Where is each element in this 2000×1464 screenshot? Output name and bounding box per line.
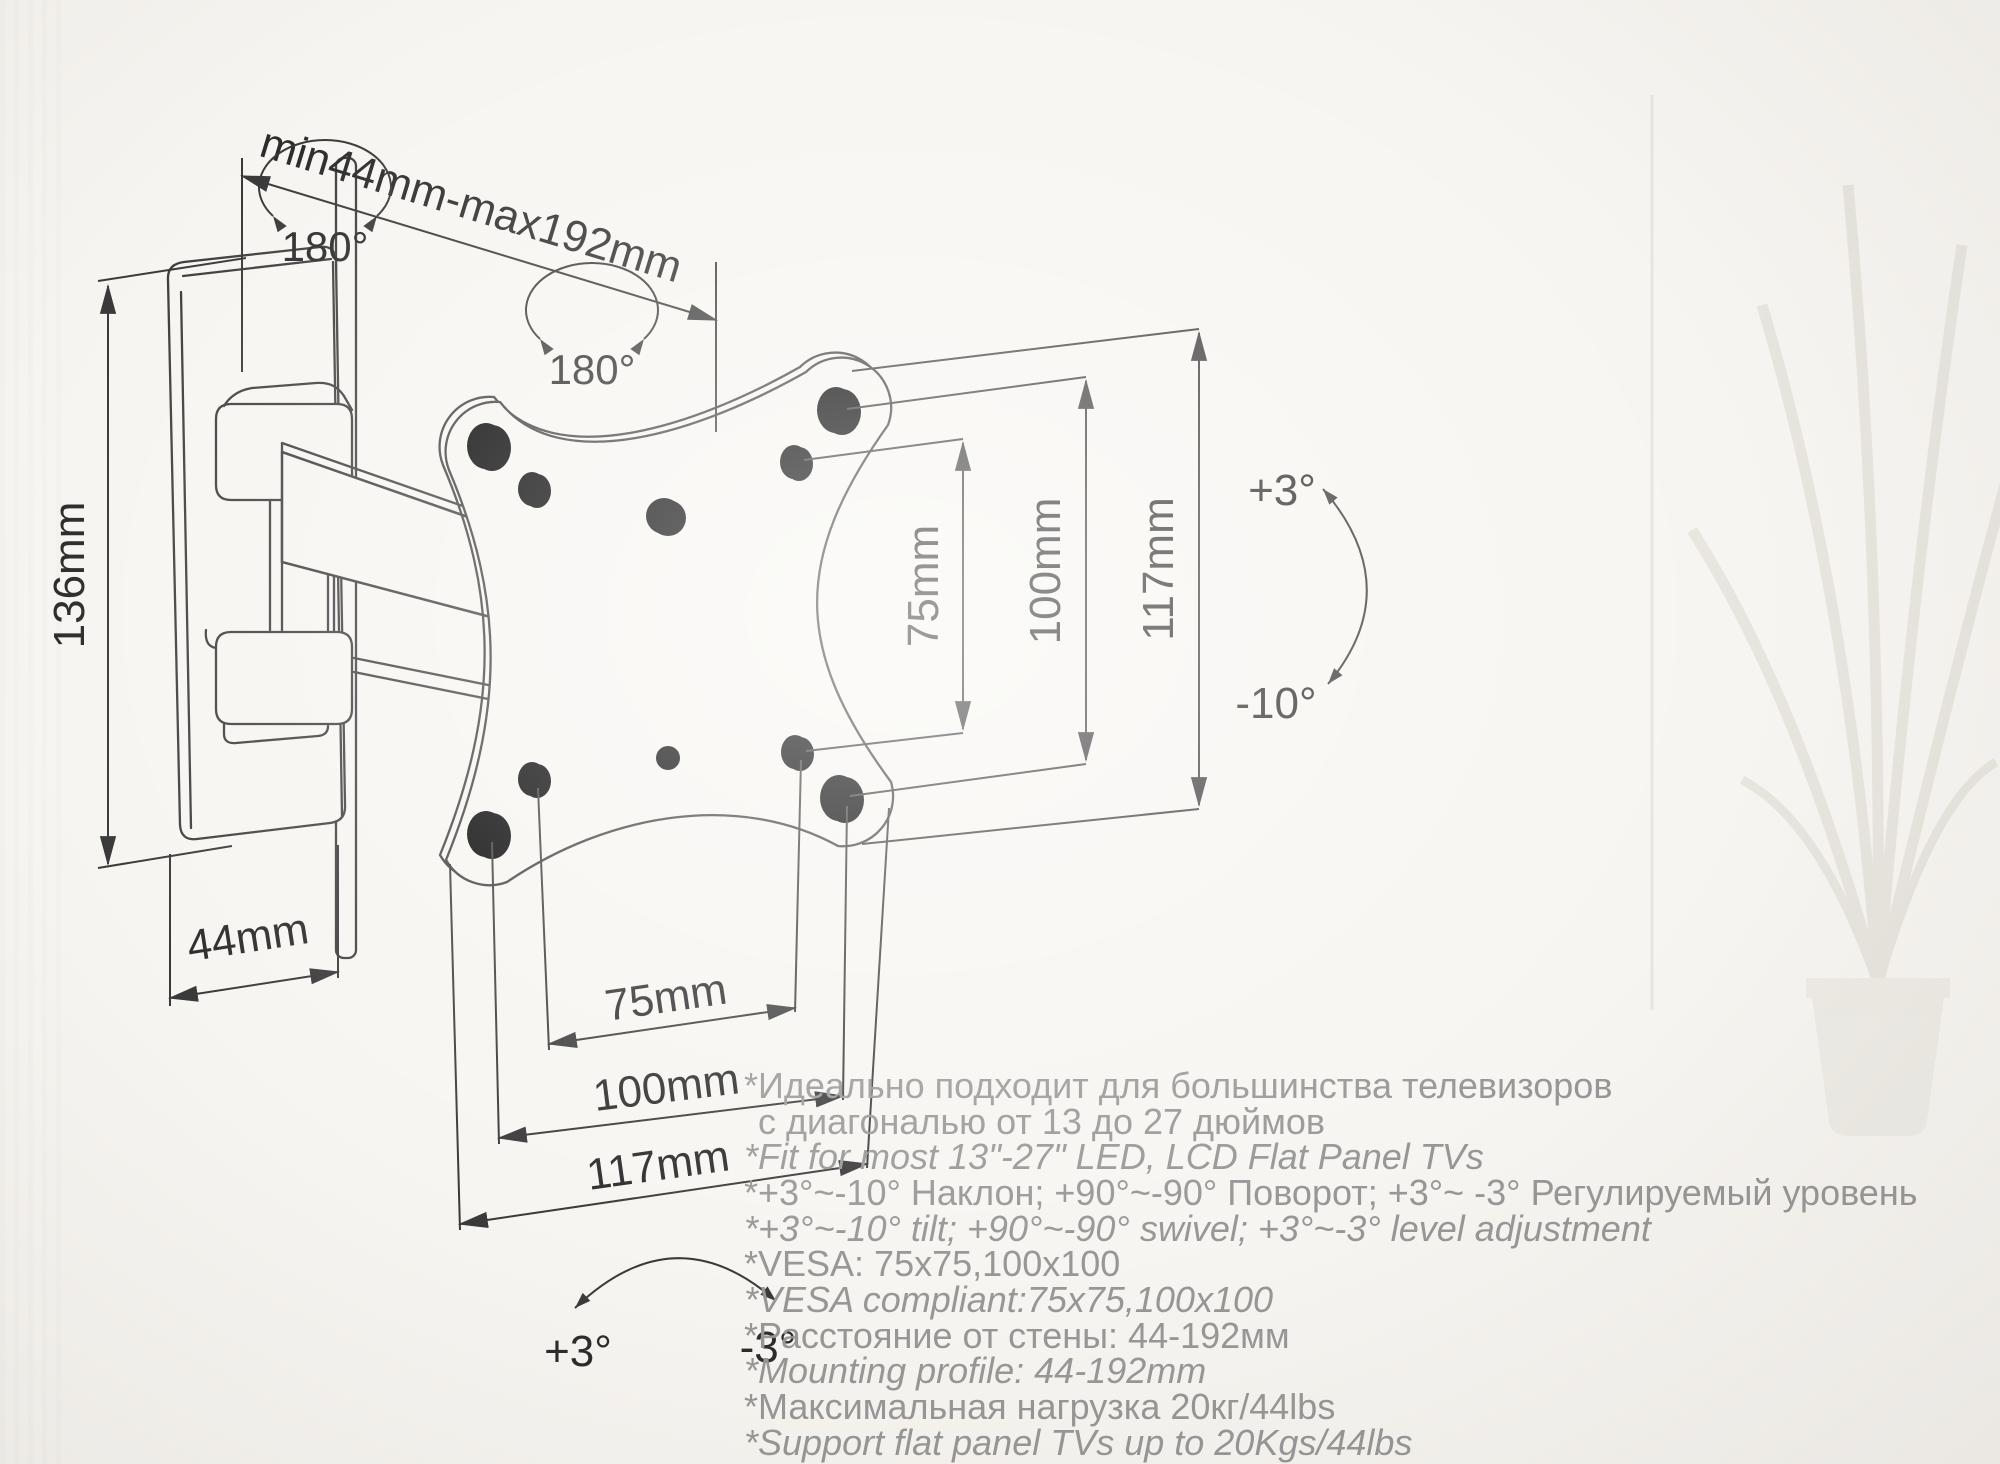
ext-line — [492, 842, 499, 1144]
spec-line: *Максимальная нагрузка 20кг/44lbs — [744, 1386, 1335, 1427]
vesa-center-keyhole — [650, 500, 686, 536]
arc-arrowhead — [1324, 668, 1343, 687]
vesa-hole — [823, 389, 861, 435]
plate-height-label: 136mm — [45, 502, 94, 649]
wall-mount-spec-drawing: min44mm-max192mm 180° 180° 136mm 44mm 75… — [0, 0, 2000, 1464]
spec-line: *Mounting profile: 44-192mm — [744, 1350, 1206, 1391]
plant-pot-rim — [1806, 978, 1950, 998]
arc-arrowhead — [1319, 485, 1338, 504]
ext-line — [98, 846, 232, 868]
vesa-center-bottom-hole — [660, 751, 672, 763]
spec-text-block: *Идеально подходит для большинства телев… — [744, 1065, 1917, 1463]
tilt-down-label: -10° — [1235, 679, 1316, 728]
vesa-v-plate-label: 117mm — [1134, 497, 1183, 640]
tilt-arc — [1323, 489, 1367, 684]
vesa-hole — [785, 447, 813, 481]
tilt-up-label: +3° — [1248, 466, 1316, 515]
spec-line: *VESA compliant:75x75,100x100 — [744, 1279, 1273, 1320]
hinge-lower-block — [216, 632, 352, 724]
vesa-v-inner-label: 75mm — [899, 525, 948, 647]
spec-line: *Fit for most 13"-27" LED, LCD Flat Pane… — [744, 1136, 1484, 1177]
swivel-wall-label: 180° — [282, 223, 369, 270]
background-decor — [1652, 95, 2000, 1136]
plate-depth-label: 44mm — [184, 904, 312, 971]
vesa-hole — [473, 425, 511, 471]
ext-line — [450, 864, 460, 1230]
vesa-v-outer-label: 100mm — [1021, 498, 1070, 645]
spec-line: *+3°~-10° Наклон; +90°~-90° Поворот; +3°… — [744, 1172, 1917, 1213]
spec-line: *Идеально подходит для большинства телев… — [744, 1065, 1612, 1106]
mount-drawing — [168, 158, 893, 958]
vesa-hole — [826, 777, 864, 823]
dim-line-plate-depth — [170, 972, 338, 998]
plant-watermark — [1692, 185, 2000, 1136]
vesa-hole — [523, 474, 551, 508]
vesa-h-plate-label: 117mm — [584, 1131, 733, 1199]
vesa-hole — [523, 764, 551, 798]
spec-line: *VESA: 75x75,100x100 — [744, 1243, 1120, 1284]
ext-line — [852, 329, 1199, 371]
ext-line — [862, 809, 1199, 844]
plant-pot — [1812, 998, 1944, 1136]
ext-line — [843, 806, 847, 1100]
spec-line: *Support flat panel TVs up to 20Kgs/44lb… — [744, 1422, 1412, 1463]
level-left-label: +3° — [544, 1327, 612, 1376]
swivel-vesa-label: 180° — [549, 346, 636, 393]
diagram-canvas: min44mm-max192mm 180° 180° 136mm 44mm 75… — [0, 0, 2000, 1464]
